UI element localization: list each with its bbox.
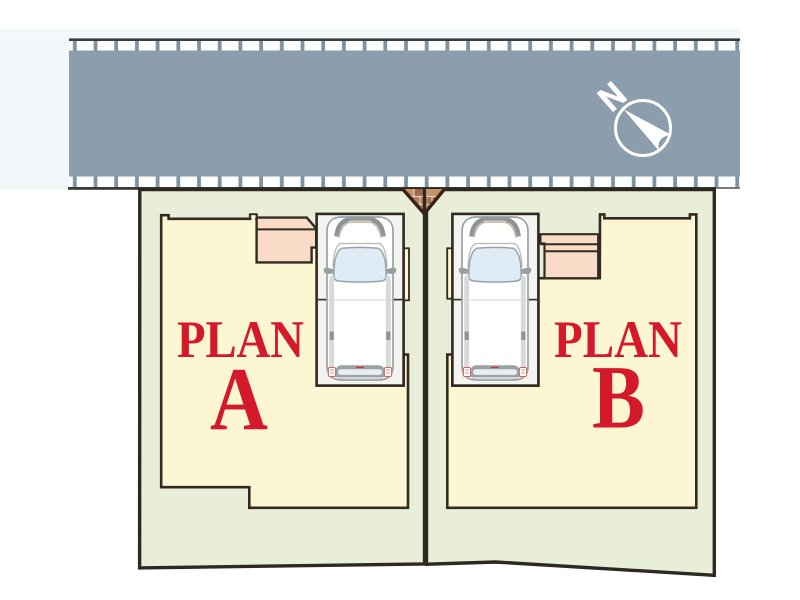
svg-text:A: A [210, 350, 268, 449]
svg-text:B: B [592, 349, 645, 448]
